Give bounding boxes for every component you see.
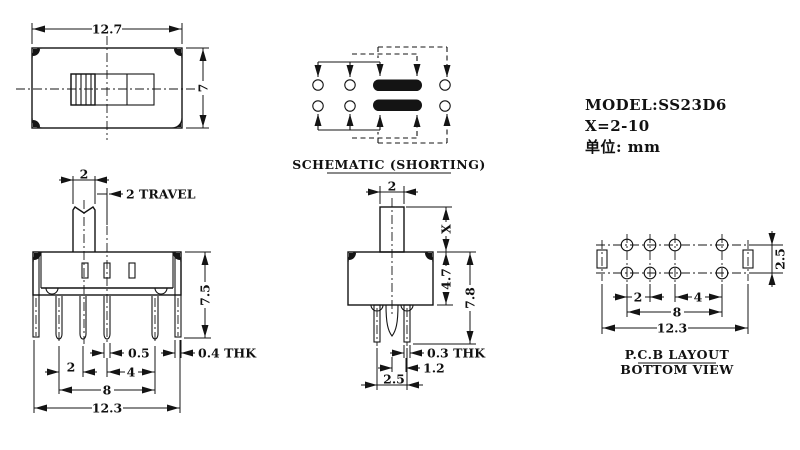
- view-schematic: SCHEMATIC (SHORTING): [292, 47, 486, 173]
- view-top: 12.7 7: [16, 22, 211, 141]
- dim-label-top-width: 12.7: [92, 22, 122, 37]
- dim-label-pin-width: 0.5: [128, 346, 150, 361]
- terminal-circle: [440, 101, 450, 111]
- dim-label-overall: 12.3: [92, 401, 122, 416]
- dim-label-total-height: 7.8: [463, 287, 478, 309]
- technical-drawing-page: 12.7 7: [0, 0, 800, 450]
- dim-label-travel: 2 TRAVEL: [126, 187, 196, 202]
- view-front: 2 2 TRAVEL 7.5 0.5 0.4 THK 2: [33, 167, 257, 416]
- dim-label-pin-thk: 0.3 THK: [427, 346, 486, 361]
- schematic-caption: SCHEMATIC (SHORTING): [292, 157, 486, 172]
- dim-label-pcb-span: 8: [673, 305, 682, 320]
- pcb-caption-line1: P.C.B LAYOUT: [625, 347, 730, 362]
- switch-body-side: [348, 252, 433, 305]
- dim-label-knob-width: 2: [80, 167, 89, 182]
- dim-label-pcb-pitch-b: 4: [694, 290, 703, 305]
- terminal-circle: [440, 80, 450, 90]
- terminal-circle: [345, 80, 355, 90]
- terminal-circle: [313, 101, 323, 111]
- center-spring: [386, 305, 398, 336]
- pcb-caption-line2: BOTTOM VIEW: [620, 362, 734, 377]
- dim-label-top-height: 7: [196, 84, 211, 93]
- dim-label-pin-gap: 1.2: [423, 361, 445, 376]
- slider-knob-top: [71, 74, 154, 105]
- shorting-bar: [373, 80, 422, 92]
- dim-label-side-knob: 2: [388, 179, 397, 194]
- unit-note: 单位: mm: [585, 138, 661, 156]
- terminal-circle: [345, 101, 355, 111]
- dim-label-knob-height-x: X: [439, 224, 454, 234]
- view-pcb: 2.5 2 4 8 12.3 P.C.B LAYOUT BOT: [596, 231, 788, 377]
- dim-label-pitch-a: 2: [67, 360, 76, 375]
- title-block: MODEL:SS23D6 X=2-10 单位: mm: [585, 96, 727, 156]
- model-number: MODEL:SS23D6: [585, 96, 727, 114]
- dim-label-bracket-thk: 0.4 THK: [198, 346, 257, 361]
- dim-label-body-height: 4.7: [439, 268, 454, 290]
- dim-label-pcb-overall: 12.3: [657, 321, 687, 336]
- terminal-circle: [313, 80, 323, 90]
- dim-label-row-pitch-side: 2.5: [383, 372, 405, 387]
- dim-label-pitch-b: 4: [127, 365, 136, 380]
- shorting-bar: [373, 100, 422, 112]
- x-range: X=2-10: [585, 117, 650, 135]
- view-side: 2 X 4.7 7.8 0.3 T: [348, 179, 486, 391]
- dim-label-front-height: 7.5: [198, 284, 213, 306]
- dim-label-span: 8: [103, 383, 112, 398]
- drawing-canvas: 12.7 7: [0, 0, 800, 450]
- dim-label-pcb-pitch-a: 2: [634, 290, 643, 305]
- dim-label-row-pitch-pcb: 2.5: [773, 248, 788, 270]
